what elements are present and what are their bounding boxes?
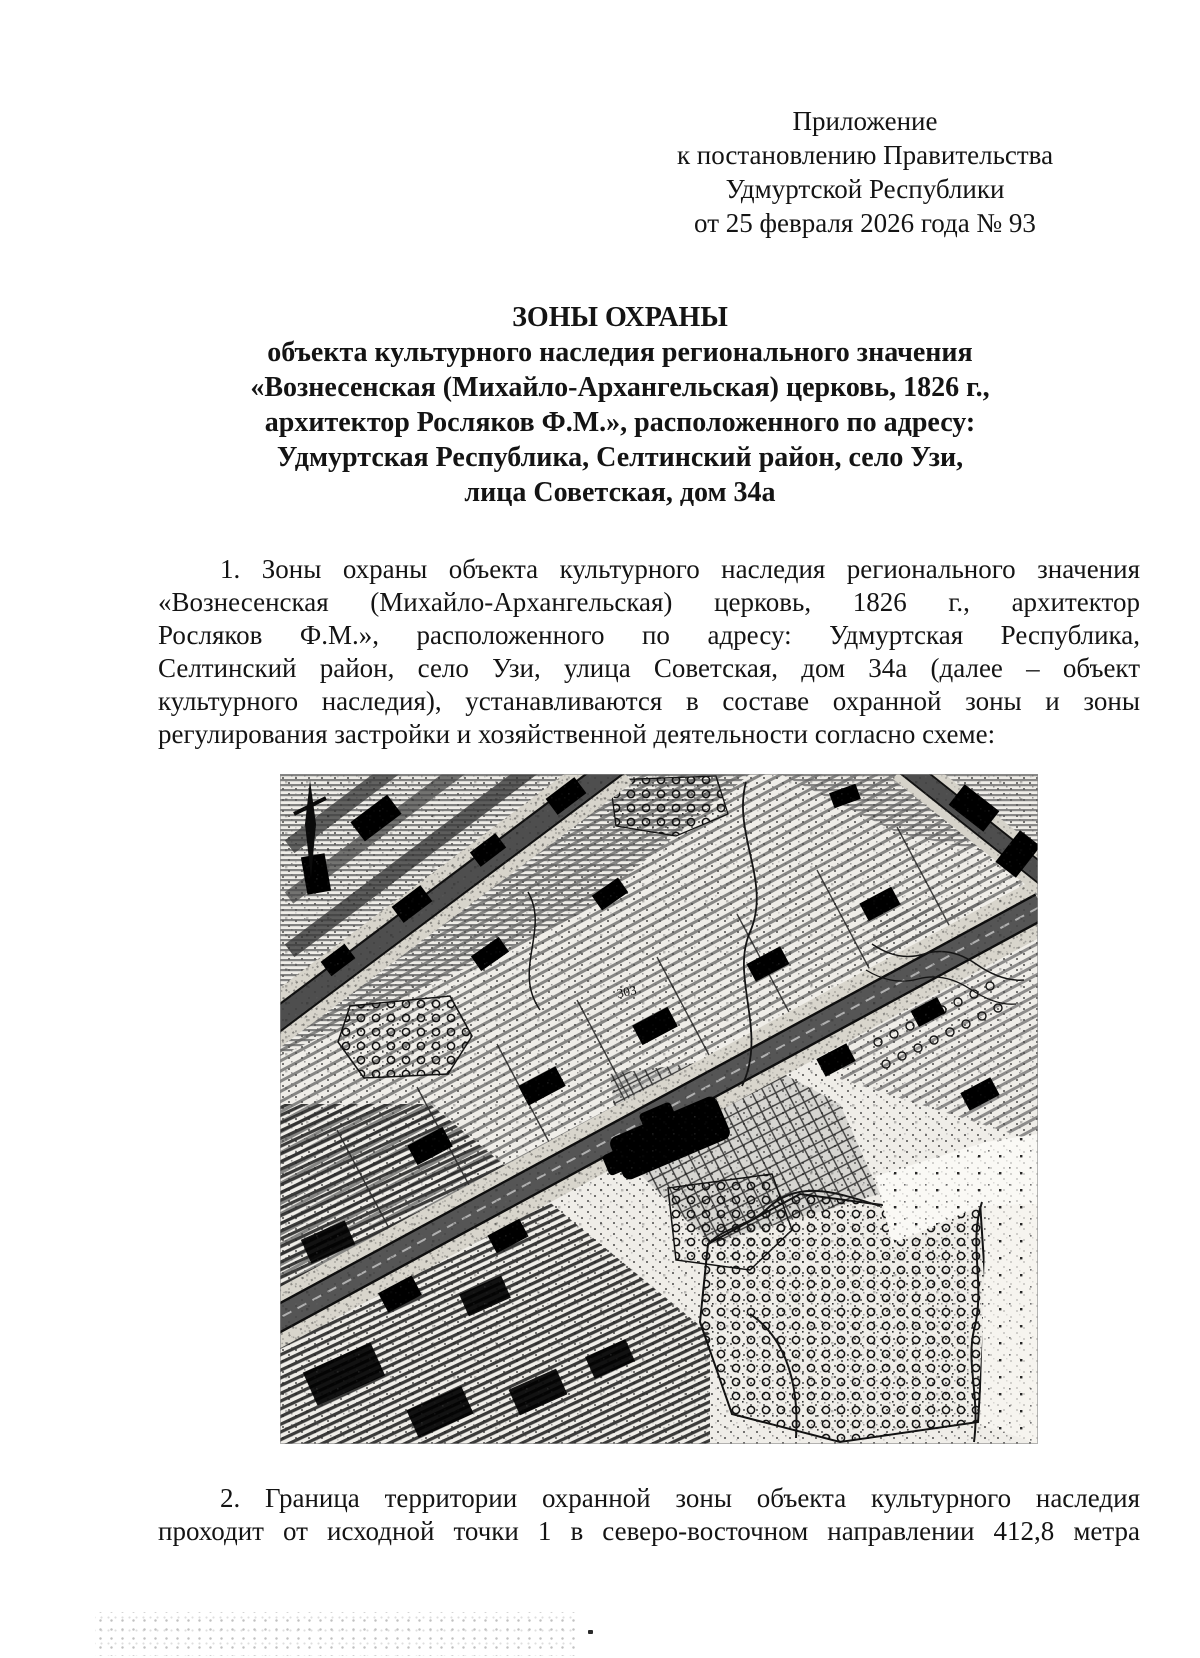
scanned-document-page: Приложение к постановлению Правительства…	[0, 0, 1200, 1658]
header-line: к постановлению Правительства	[645, 138, 1085, 172]
paragraph-line: «Вознесенская (Михайло-Архангельская) це…	[158, 586, 1140, 619]
title-line: ЗОНЫ ОХРАНЫ	[40, 300, 1200, 335]
paragraph-line: регулирования застройки и хозяйственной …	[158, 718, 1140, 751]
scan-noise-artifact	[95, 1612, 575, 1656]
paragraph-line: проходит от исходной точки 1 в северо-во…	[158, 1515, 1140, 1548]
title-line: архитектор Росляков Ф.М.», расположенног…	[40, 405, 1200, 440]
paragraph-line: Росляков Ф.М.», расположенного по адресу…	[158, 619, 1140, 652]
appendix-header: Приложение к постановлению Правительства…	[645, 104, 1085, 240]
protection-zones-map: 303	[280, 774, 1038, 1444]
paragraph-line: Селтинский район, село Узи, улица Советс…	[158, 652, 1140, 685]
header-line: Приложение	[645, 104, 1085, 138]
document-title: ЗОНЫ ОХРАНЫ объекта культурного наследия…	[40, 300, 1200, 510]
scan-speck-artifact	[588, 1630, 593, 1634]
header-line: от 25 февраля 2026 года № 93	[645, 206, 1085, 240]
paragraph-line: 1. Зоны охраны объекта культурного насле…	[158, 553, 1140, 586]
paragraph-2: 2. Граница территории охранной зоны объе…	[158, 1482, 1140, 1548]
title-line: объекта культурного наследия регионально…	[40, 335, 1200, 370]
paragraph-line: 2. Граница территории охранной зоны объе…	[158, 1482, 1140, 1515]
paragraph-1: 1. Зоны охраны объекта культурного насле…	[158, 553, 1140, 751]
title-line: Удмуртская Республика, Селтинский район,…	[40, 440, 1200, 475]
paragraph-line: культурного наследия), устанавливаются в…	[158, 685, 1140, 718]
title-line: «Вознесенская (Михайло-Архангельская) це…	[40, 370, 1200, 405]
title-line: лица Советская, дом 34а	[40, 475, 1200, 510]
header-line: Удмуртской Республики	[645, 172, 1085, 206]
